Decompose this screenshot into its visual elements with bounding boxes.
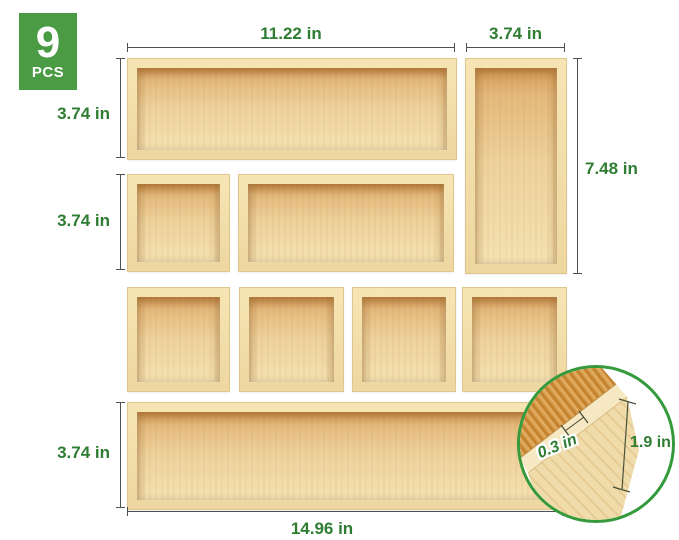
dim-label-row2-height: 3.74 in — [38, 211, 110, 231]
piece-count-number: 9 — [36, 22, 60, 64]
organizer-box-tall-right — [465, 58, 567, 274]
dim-line-row1-height — [120, 58, 121, 158]
product-dimension-diagram: 9 PCS 11.22 in 3.74 in 3.74 in 3.74 in 7… — [0, 0, 679, 540]
organizer-box-row2-square — [127, 174, 230, 272]
dim-label-top-long-width: 11.22 in — [241, 24, 341, 44]
dim-line-right-column-height — [577, 58, 578, 274]
organizer-box-top-long — [127, 58, 457, 160]
box-interior — [362, 297, 446, 382]
organizer-box-row3-1 — [127, 287, 230, 392]
box-interior — [137, 184, 220, 262]
dim-label-right-column-height: 7.48 in — [585, 159, 638, 179]
corner-detail-inset: 0.3 in 1.9 in — [517, 365, 675, 523]
dim-label-row1-height: 3.74 in — [38, 104, 110, 124]
dim-label-top-right-width: 3.74 in — [466, 24, 565, 44]
piece-count-unit: PCS — [32, 64, 64, 81]
organizer-box-bottom-long — [127, 402, 565, 510]
organizer-box-row3-2 — [239, 287, 344, 392]
dim-line-top-right — [466, 47, 565, 48]
dim-line-bottom-width — [127, 511, 563, 512]
organizer-box-row3-3 — [352, 287, 456, 392]
organizer-box-row2-wide — [238, 174, 454, 272]
box-interior — [137, 297, 220, 382]
box-interior — [137, 412, 555, 500]
dim-label-bottom-row-width: 14.96 in — [272, 519, 372, 539]
box-interior — [475, 68, 557, 264]
dim-line-bottom-row-height — [120, 402, 121, 508]
piece-count-badge: 9 PCS — [19, 13, 77, 90]
dim-label-bottom-row-height: 3.74 in — [38, 443, 110, 463]
dim-line-top-long — [127, 47, 455, 48]
box-interior — [137, 68, 447, 150]
box-interior — [248, 184, 444, 262]
dim-line-row2-height — [120, 174, 121, 270]
box-interior — [249, 297, 334, 382]
dim-label-wall-height: 1.9 in — [630, 434, 671, 452]
